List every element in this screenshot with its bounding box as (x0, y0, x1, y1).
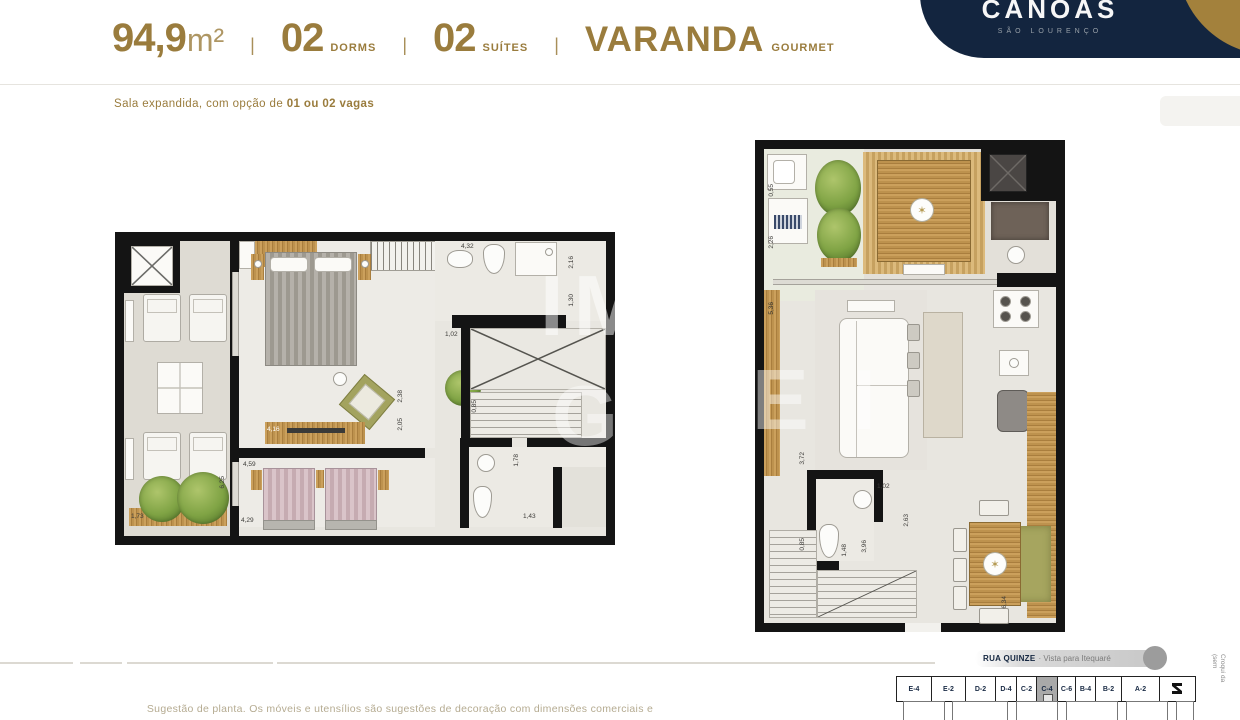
dim-label: 1,43 (523, 513, 536, 520)
street-marker-dot (1143, 646, 1167, 670)
varanda-value: VARANDA (585, 20, 764, 60)
dim-label: 0,55 (768, 184, 775, 197)
keyplan-outline (903, 701, 945, 720)
keyplan-unit: E-4 (896, 676, 933, 702)
nightstand (251, 470, 262, 490)
keyplan-unit: B-2 (1095, 676, 1123, 702)
keyplan-outline (952, 701, 1008, 720)
side-table-round (333, 372, 347, 386)
dim-label: 6,34 (1001, 596, 1008, 609)
stool (907, 352, 920, 369)
dim-label: 2,63 (903, 514, 910, 527)
dim-label: 6,25 (219, 476, 226, 489)
dim-label: 4,59 (243, 461, 256, 468)
area-unit: m² (187, 22, 224, 59)
keyplan-core-cell (1159, 676, 1196, 702)
bench (903, 264, 945, 275)
kitchen-island (923, 312, 963, 438)
dim-label: 2,16 (568, 256, 575, 269)
keyplan-outline (1176, 701, 1194, 720)
burner (1000, 311, 1011, 322)
dim-label: 1,73 (131, 513, 144, 520)
window (232, 272, 239, 356)
floorplan-living-level: ✶ (755, 140, 1065, 632)
separator: | (250, 35, 255, 56)
washer-drum (774, 215, 802, 229)
dorms-label: DORMS (330, 42, 376, 54)
dorms-value: 02 (281, 16, 324, 61)
wall (807, 470, 883, 479)
entry-door-gap (905, 623, 941, 632)
nightstand (316, 470, 324, 488)
dining-chair (979, 608, 1009, 624)
shower (515, 242, 557, 276)
double-bed (265, 252, 357, 366)
keyplan-unit-row: E-4 E-2 D-2 D-4 C-2 C-4 C-6 B-4 B-2 A-2 (897, 676, 1196, 702)
footer-divider (127, 662, 273, 664)
dim-label: 4,29 (241, 517, 254, 524)
dim-label: 2,26 (768, 236, 775, 249)
shower-drain (545, 248, 553, 256)
varanda-sink (1007, 246, 1025, 264)
croqui-line-1: Croqui da (1218, 654, 1226, 682)
keyplan-unit: E-2 (931, 676, 966, 702)
dim-label: 3,96 (861, 540, 868, 553)
window-wood-strip (764, 290, 780, 476)
croqui-caption: Croqui da (sem (1210, 654, 1226, 682)
floorplan-bedroom-level: 4,32 2,16 1,30 1,02 4,16 4,59 2,38 2,05 … (115, 232, 615, 545)
side-table (125, 300, 134, 342)
keyplan-unit: C-6 (1057, 676, 1077, 702)
kitchen-sink (999, 350, 1029, 376)
street-view: · Vista para Itequaré (1038, 654, 1110, 663)
keyplan-unit-highlighted: C-4 (1036, 676, 1058, 702)
stairs (817, 570, 917, 618)
street-name: RUA QUINZE (983, 654, 1035, 663)
suites-value: 02 (433, 16, 476, 61)
plant (817, 208, 861, 262)
logo-name: CANOAS (920, 0, 1180, 25)
subtitle-regular: Sala expandida, com opção de (114, 98, 287, 110)
sofa-seat-line (857, 385, 908, 386)
dim-label: 0,85 (799, 538, 806, 551)
footer-divider (277, 662, 935, 664)
kitchen-basin (1009, 358, 1019, 368)
brochure-page: 94,9m² | 02DORMS | 02SUÍTES | VARANDAGOU… (0, 0, 1240, 720)
table-centerpiece: ✶ (983, 552, 1007, 576)
pillow (314, 257, 352, 272)
wall (553, 467, 562, 528)
armchair-cushion (349, 384, 386, 421)
bathroom-sink (853, 490, 872, 509)
stove (993, 290, 1039, 328)
separator: | (554, 35, 559, 56)
planter (821, 258, 857, 267)
window (232, 462, 239, 506)
shower-stall (562, 467, 606, 527)
wall (874, 470, 883, 522)
keyplan-unit: B-4 (1075, 676, 1096, 702)
area-value: 94,9 (112, 16, 186, 61)
keyplan-core-icon (1170, 682, 1184, 696)
footer-divider (0, 662, 73, 664)
table-centerpiece: ✶ (910, 198, 934, 222)
void-x-icon (471, 329, 605, 389)
croqui-line-2: (sem (1210, 654, 1218, 682)
dining-chair (953, 528, 967, 552)
dining-chair (979, 500, 1009, 516)
keyplan-unit: D-4 (995, 676, 1017, 702)
dim-label: 3,72 (799, 452, 806, 465)
side-table (125, 438, 134, 480)
keyplan-unit: C-2 (1016, 676, 1038, 702)
nightstand (378, 470, 389, 490)
dim-label: 2,05 (397, 418, 404, 431)
stairs (769, 530, 817, 618)
lounge-chair (143, 432, 181, 480)
lamp (361, 260, 369, 268)
dim-label: 4,16 (267, 426, 280, 433)
table-cross-lines (158, 363, 202, 413)
wall (997, 273, 1056, 287)
dim-label: 1,48 (841, 544, 848, 557)
keyplan-outline (1016, 701, 1058, 720)
suites-label: SUÍTES (483, 42, 529, 54)
x-hatch-icon (132, 247, 172, 285)
dim-label: 1,78 (513, 454, 520, 467)
dim-label: 5,36 (768, 302, 775, 315)
wall (461, 328, 470, 440)
bathroom-sink (447, 250, 473, 268)
sofa (839, 318, 909, 458)
grill-counter (991, 202, 1049, 240)
disclaimer-text: Sugestão de planta. Os móveis e utensíli… (120, 703, 680, 715)
street-label: RUA QUINZE · Vista para Itequaré (975, 650, 1161, 667)
logo-subtitle: SÃO LOURENÇO (920, 28, 1180, 35)
subtitle-bold: 01 ou 02 vagas (287, 98, 374, 110)
header-divider (0, 84, 1240, 85)
grill (989, 154, 1027, 192)
wall (527, 438, 606, 447)
wall (452, 315, 566, 328)
lounge-chair (143, 294, 181, 342)
laundry-basin (773, 160, 795, 184)
fridge (997, 390, 1029, 432)
wall (239, 448, 425, 458)
balcony-table (157, 362, 203, 414)
dim-label: 0,85 (471, 400, 478, 413)
dining-chair (953, 558, 967, 582)
dim-label: 1,02 (877, 483, 890, 490)
stool (907, 380, 920, 397)
bedroom-rug-wood (265, 422, 365, 444)
separator: | (402, 35, 407, 56)
stair-diagonal-line (818, 571, 916, 617)
varanda-label: GOURMET (771, 42, 834, 54)
stairs (470, 392, 582, 438)
dim-label: 4,32 (461, 243, 474, 250)
keyplan-unit: A-2 (1121, 676, 1160, 702)
burner (1020, 296, 1031, 307)
shaft-box (131, 246, 173, 286)
pillow (270, 257, 308, 272)
keyplan-unit: D-2 (965, 676, 997, 702)
side-tab-decor (1160, 96, 1240, 126)
console-table (847, 300, 895, 312)
dim-label: 1,02 (445, 331, 458, 338)
grill-x-icon (990, 155, 1026, 191)
wall (460, 438, 469, 528)
sliding-door (773, 279, 997, 285)
burner (1020, 311, 1031, 322)
tv-rack (287, 428, 345, 433)
bathroom-sink (477, 454, 495, 472)
lounge-chair (189, 294, 227, 342)
sofa-back-line (856, 321, 857, 457)
lamp (254, 260, 262, 268)
bed-foot-bench (263, 520, 315, 530)
subtitle: Sala expandida, com opção de 01 ou 02 va… (114, 98, 374, 110)
dim-label: 1,30 (568, 294, 575, 307)
bed-foot-bench (325, 520, 377, 530)
burner (1000, 296, 1011, 307)
keyplan-outline (1126, 701, 1168, 720)
stool (907, 324, 920, 341)
unit-specs-header: 94,9m² | 02DORMS | 02SUÍTES | VARANDAGOU… (112, 16, 835, 61)
keyplan-outline (1066, 701, 1118, 720)
stair-void (470, 328, 606, 390)
dining-chair (953, 586, 967, 610)
dim-label: 2,38 (397, 390, 404, 403)
footer-divider (80, 662, 122, 664)
